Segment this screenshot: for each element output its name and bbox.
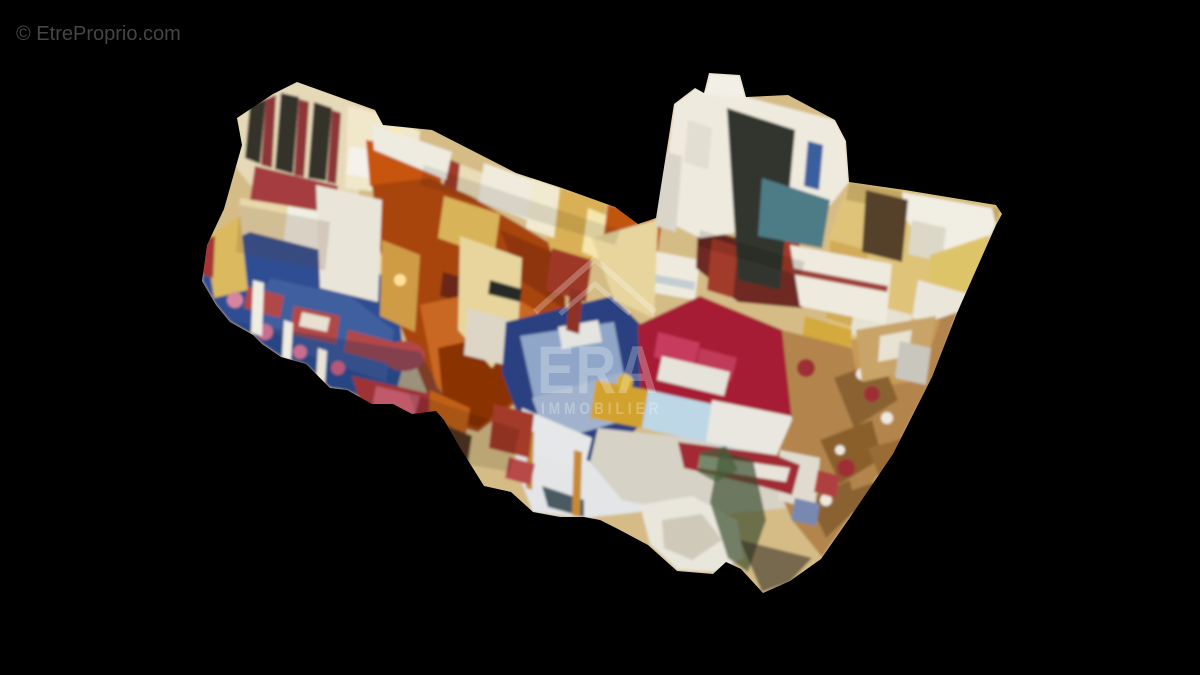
svg-text:ERA: ERA	[537, 332, 659, 408]
svg-text:IMMOBILIER: IMMOBILIER	[541, 400, 663, 419]
